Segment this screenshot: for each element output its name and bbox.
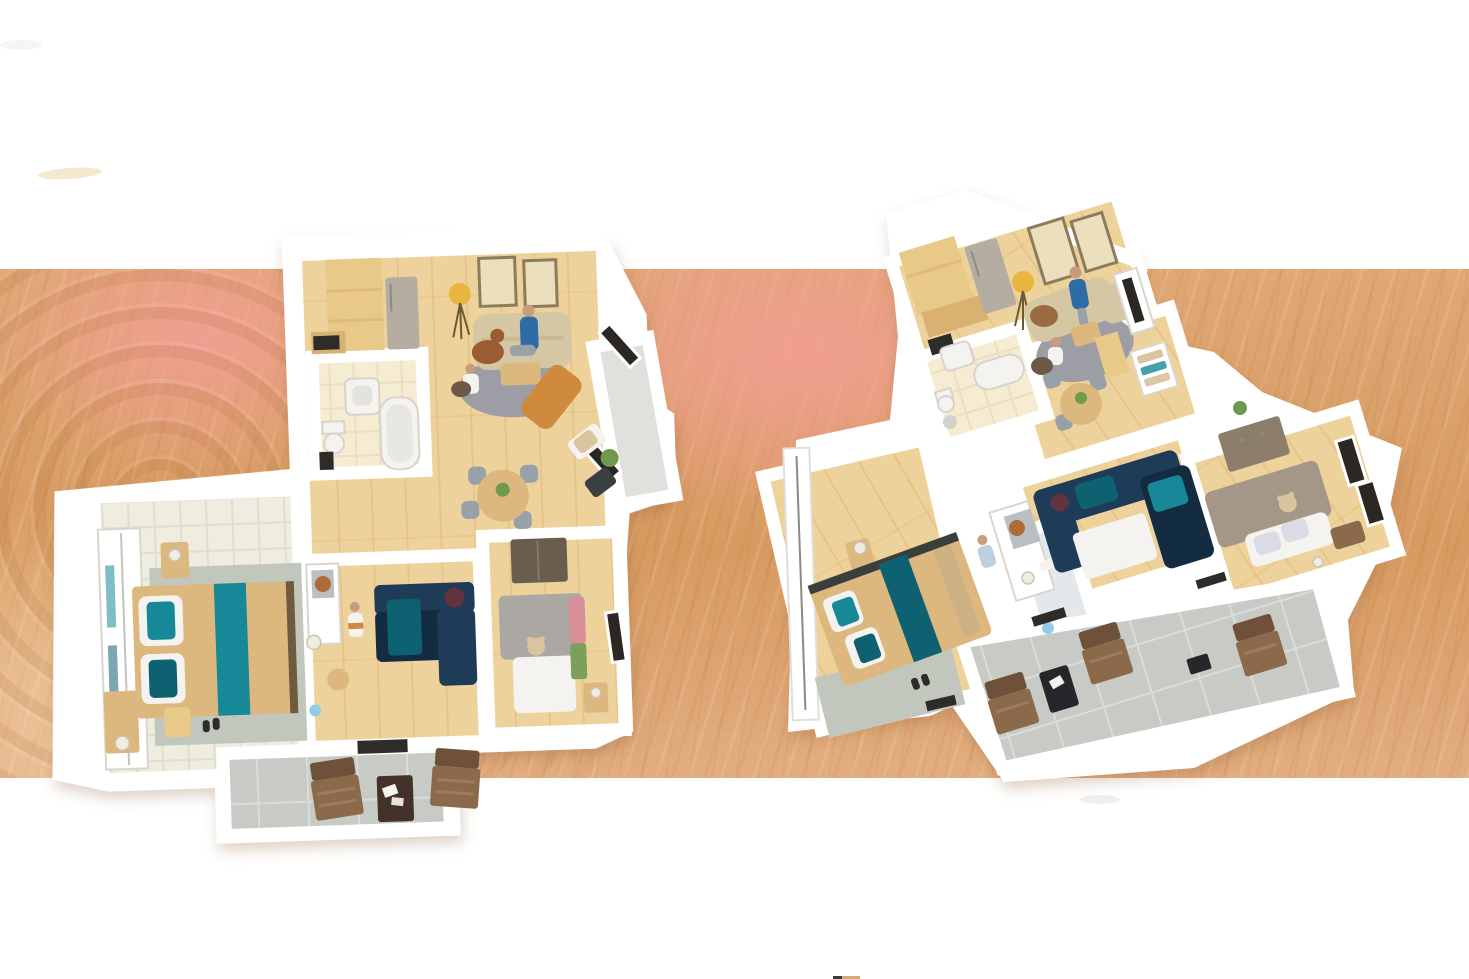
- coats-on-sofa: [1030, 305, 1058, 327]
- bed-blanket-accent: [568, 597, 586, 644]
- door-sill-dark: [357, 739, 407, 754]
- child-dress-stripe: [348, 623, 363, 630]
- toilet-bowl: [324, 433, 345, 454]
- child-head: [1051, 337, 1061, 347]
- coffee-table: [500, 362, 541, 385]
- chair-back: [435, 748, 480, 769]
- sink-basin: [352, 385, 373, 406]
- wall-plant: [1233, 401, 1247, 415]
- niche-shelf: [306, 563, 341, 644]
- bed-foot-white: [513, 655, 577, 713]
- bed-cushion-teal: [148, 659, 177, 698]
- chair-seat: [310, 774, 364, 821]
- floor-plans-illustration: [0, 0, 1469, 979]
- teal-blanket: [386, 599, 422, 656]
- bath-shelf-dark: [319, 452, 334, 470]
- floor-plan-right: [763, 190, 1402, 782]
- toilet-tank: [322, 421, 344, 434]
- nightstand-lamp: [591, 687, 601, 697]
- table-plant: [1075, 392, 1087, 404]
- kitchen-cooktop: [313, 335, 339, 350]
- wall-picture: [479, 257, 517, 306]
- toilet-bowl: [938, 396, 954, 412]
- person-legs: [510, 344, 536, 356]
- sphere-lamp: [307, 635, 321, 649]
- dresser-lamp: [115, 736, 129, 750]
- nightstand-lamp: [169, 549, 181, 561]
- bed-cushion-teal: [146, 601, 175, 640]
- basket: [1031, 357, 1053, 375]
- wall-picture: [524, 260, 558, 307]
- bed-runner-teal: [214, 583, 251, 716]
- paper-on-table: [391, 797, 404, 806]
- bathtub-inner: [386, 404, 414, 463]
- dining-chair: [461, 501, 480, 520]
- lamp: [1313, 557, 1323, 567]
- slipper: [212, 718, 219, 730]
- sofa-chaise: [437, 609, 478, 686]
- lamp-shade-yellow: [1012, 271, 1034, 293]
- sphere-lamp: [1022, 572, 1034, 584]
- dresser-handle: [1240, 438, 1244, 442]
- bed-blanket-accent-green: [570, 643, 587, 680]
- dresser-handle: [1260, 432, 1264, 436]
- nightstand-lamp: [854, 542, 866, 554]
- double-bed-teal: [132, 581, 299, 719]
- slipper: [203, 720, 210, 732]
- chair-seat: [430, 766, 481, 809]
- bath-stool: [943, 415, 957, 429]
- terrace-chair: [430, 748, 482, 809]
- bedroom-stool: [164, 707, 191, 738]
- hat-on-shelf: [1009, 520, 1025, 536]
- floor-plan-left: [34, 224, 689, 850]
- floor-plan-poster: [0, 0, 1469, 979]
